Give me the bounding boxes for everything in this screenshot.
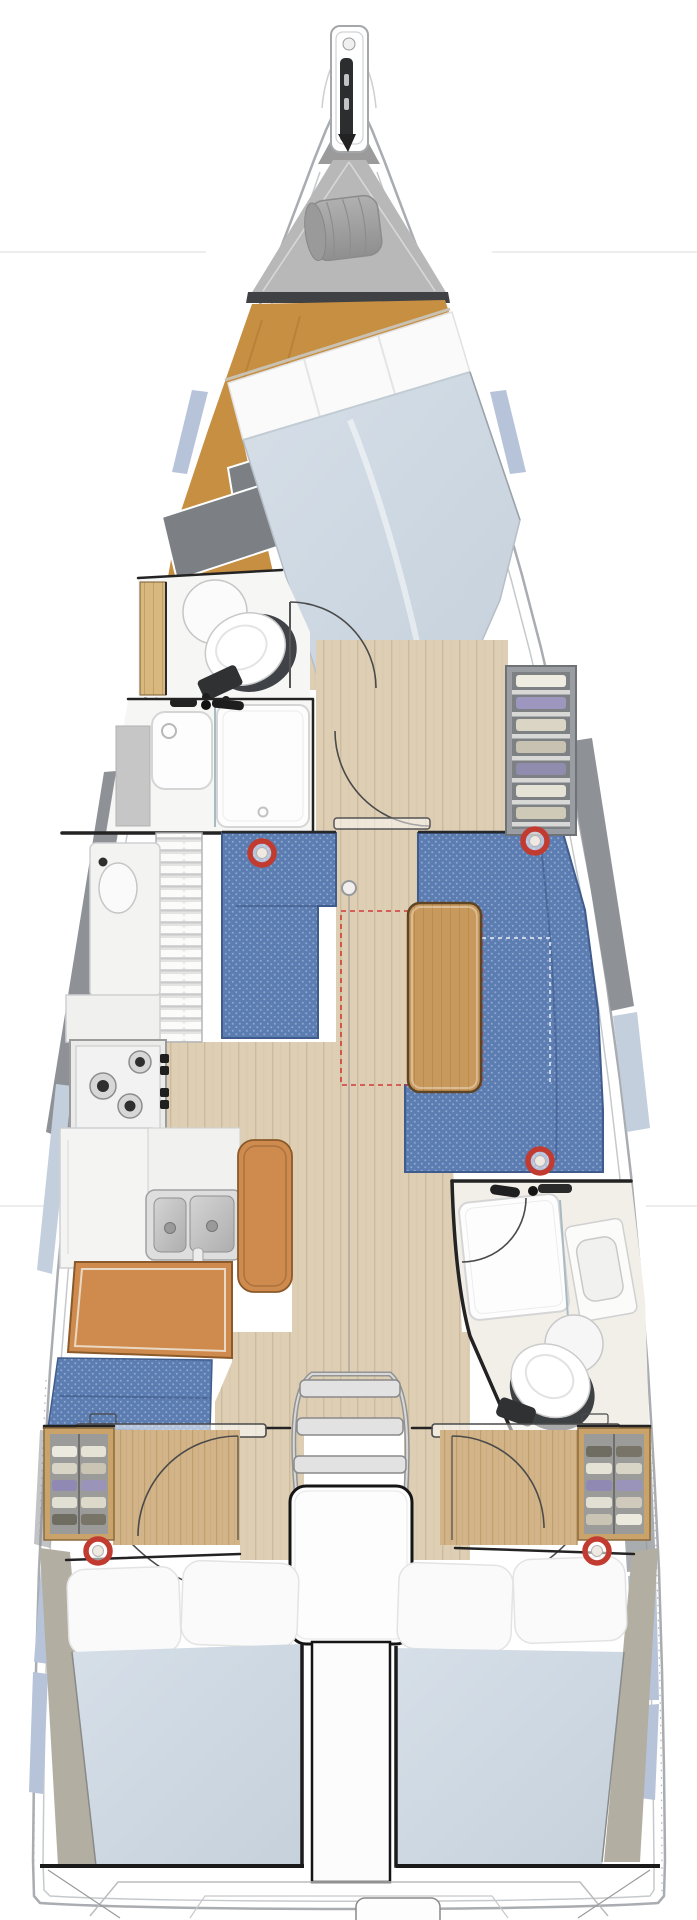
saloon-floor — [316, 640, 508, 835]
deck-hatch-marker-core — [535, 1156, 546, 1167]
berth-pillow — [513, 1556, 628, 1644]
chart-table — [68, 1262, 232, 1358]
boat-floor-plan: Hull outline with side decks and hull wi… — [0, 0, 697, 1920]
berth-pillow — [181, 1560, 300, 1648]
deck-hatch-marker-core — [93, 1546, 104, 1557]
shower-tray — [217, 705, 309, 827]
sail-locker: Forepeak sail locker with stowed sail ba… — [246, 142, 450, 303]
ladder-step — [294, 1456, 406, 1473]
deck-hatch-marker-core — [530, 836, 541, 847]
saloon-floor — [292, 1148, 462, 1332]
wet-locker — [116, 726, 150, 826]
stove-knob — [160, 1100, 169, 1109]
saloon-table — [408, 903, 481, 1092]
transom-locker — [356, 1898, 440, 1920]
forward-head: Forward head toilet compartment — [138, 570, 310, 707]
windlass-icon — [343, 38, 355, 50]
starboard-locker — [578, 1426, 650, 1540]
berth-pillow — [67, 1566, 182, 1656]
nav-cushion — [48, 1358, 212, 1432]
ladder-step — [297, 1418, 403, 1435]
nav-seat — [238, 1140, 292, 1292]
stove-knob — [160, 1088, 169, 1097]
ladder-step — [300, 1380, 400, 1397]
deck-hatch-marker-core — [592, 1546, 603, 1557]
berth-mattress — [396, 1648, 624, 1866]
berth-pillow — [397, 1562, 514, 1652]
anchor-slot — [344, 98, 349, 110]
washbasin — [152, 712, 212, 789]
anchor-slot — [344, 74, 349, 86]
berth-mattress — [72, 1644, 302, 1866]
starboard-wardrobe: Starboard shelved wardrobe — [506, 666, 576, 835]
wardrobe-shelves — [512, 675, 570, 827]
galley-stove — [70, 1040, 169, 1134]
galley-counter — [66, 995, 160, 1042]
cabin-entry-floor — [113, 1430, 240, 1545]
engine-box — [290, 1486, 412, 1644]
faucet-base — [201, 700, 211, 710]
refrigerator — [60, 1128, 152, 1268]
sail-bag — [302, 194, 384, 263]
deck-hatch-marker-core — [257, 848, 268, 859]
stove-knob — [160, 1054, 169, 1063]
faucet-icon — [538, 1184, 572, 1193]
stove-knob — [160, 1066, 169, 1075]
mast-post — [342, 881, 356, 895]
port-settee — [222, 833, 336, 1038]
port-locker — [44, 1426, 114, 1540]
bowsprit: Bowsprit with anchor roller and windlass — [322, 26, 376, 152]
stbd-door-leaf — [334, 818, 430, 829]
faucet-base — [528, 1186, 538, 1196]
galley-small-sink — [99, 863, 137, 913]
cabin-entry-floor — [440, 1430, 578, 1545]
faucet-icon — [99, 858, 108, 867]
head-door — [140, 582, 166, 695]
louvered-locker — [156, 833, 202, 1042]
companionway-ladder — [294, 1374, 407, 1490]
aft-shower-tray — [458, 1193, 570, 1321]
boat-floor-plan-page: Hull outline with side decks and hull wi… — [0, 0, 697, 1920]
galley-counter-aft — [148, 1128, 240, 1192]
engine-column — [312, 1642, 390, 1882]
